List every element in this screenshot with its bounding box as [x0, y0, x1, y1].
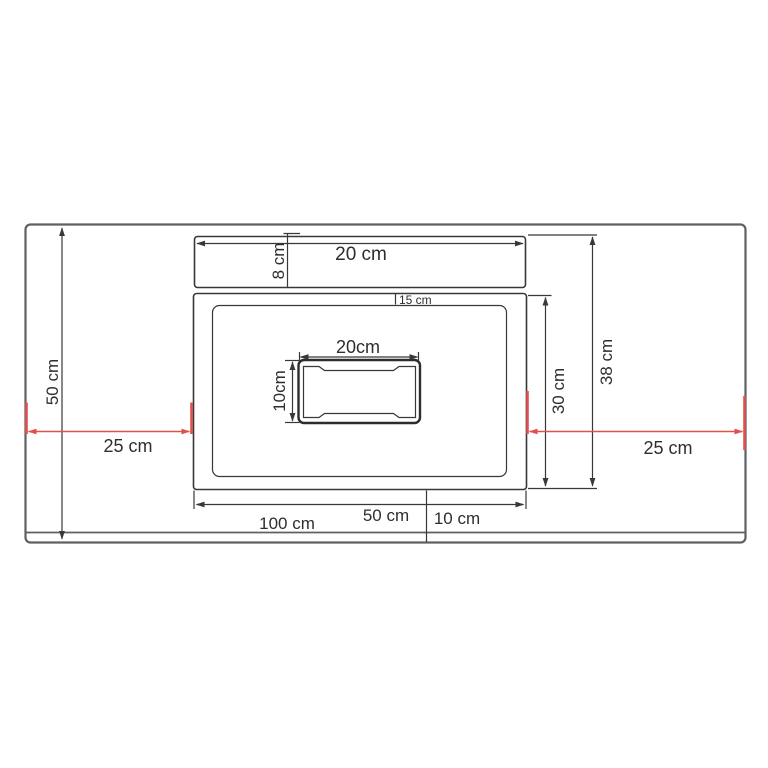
countertop	[26, 225, 746, 543]
dim-label-width-10: 10 cm	[434, 509, 480, 528]
drawing-canvas: 50 cm 20 cm 8 cm 15 cm 20cm	[0, 0, 768, 768]
basin-cutout	[299, 360, 421, 423]
clearance-left-label: 25 cm	[103, 436, 152, 456]
dim-label-unit-depth: 30 cm	[549, 368, 568, 414]
sink-unit-outline	[194, 294, 527, 490]
dim-basin-offset: 15 cm	[396, 293, 432, 307]
basin-cutout-inner-rim	[304, 367, 416, 418]
dim-shelf-width: 20 cm	[197, 244, 523, 266]
dim-label-shelf-width: 20 cm	[335, 244, 387, 265]
clearance-right-label: 25 cm	[643, 438, 692, 458]
dim-label-width-50: 50 cm	[363, 506, 409, 525]
dim-unit-depth: 30 cm	[528, 296, 568, 487]
dim-label-overall-depth: 38 cm	[597, 339, 616, 385]
dim-bottom-widths: 100 cm 50 cm 10 cm	[194, 491, 526, 543]
dim-label-cutout-width: 20cm	[336, 337, 380, 357]
dim-cutout-depth: 10cm	[270, 361, 300, 423]
dim-cutout-width: 20cm	[300, 337, 419, 361]
dim-label-counter-depth: 50 cm	[43, 359, 62, 405]
sink-unit-inner-rim	[213, 306, 507, 477]
dim-label-shelf-depth: 8 cm	[269, 243, 288, 280]
dim-shelf-depth: 8 cm	[269, 234, 300, 288]
clearance-left: 25 cm	[27, 403, 192, 457]
dim-overall-depth: 38 cm	[528, 235, 616, 489]
dim-label-basin-offset: 15 cm	[399, 293, 432, 307]
sink-unit	[194, 294, 527, 490]
dim-label-cutout-depth: 10cm	[270, 370, 289, 412]
dim-counter-depth: 50 cm	[43, 228, 62, 539]
countertop-outline	[26, 225, 746, 543]
technical-drawing: 50 cm 20 cm 8 cm 15 cm 20cm	[0, 0, 768, 768]
dim-label-width-100: 100 cm	[259, 514, 315, 533]
